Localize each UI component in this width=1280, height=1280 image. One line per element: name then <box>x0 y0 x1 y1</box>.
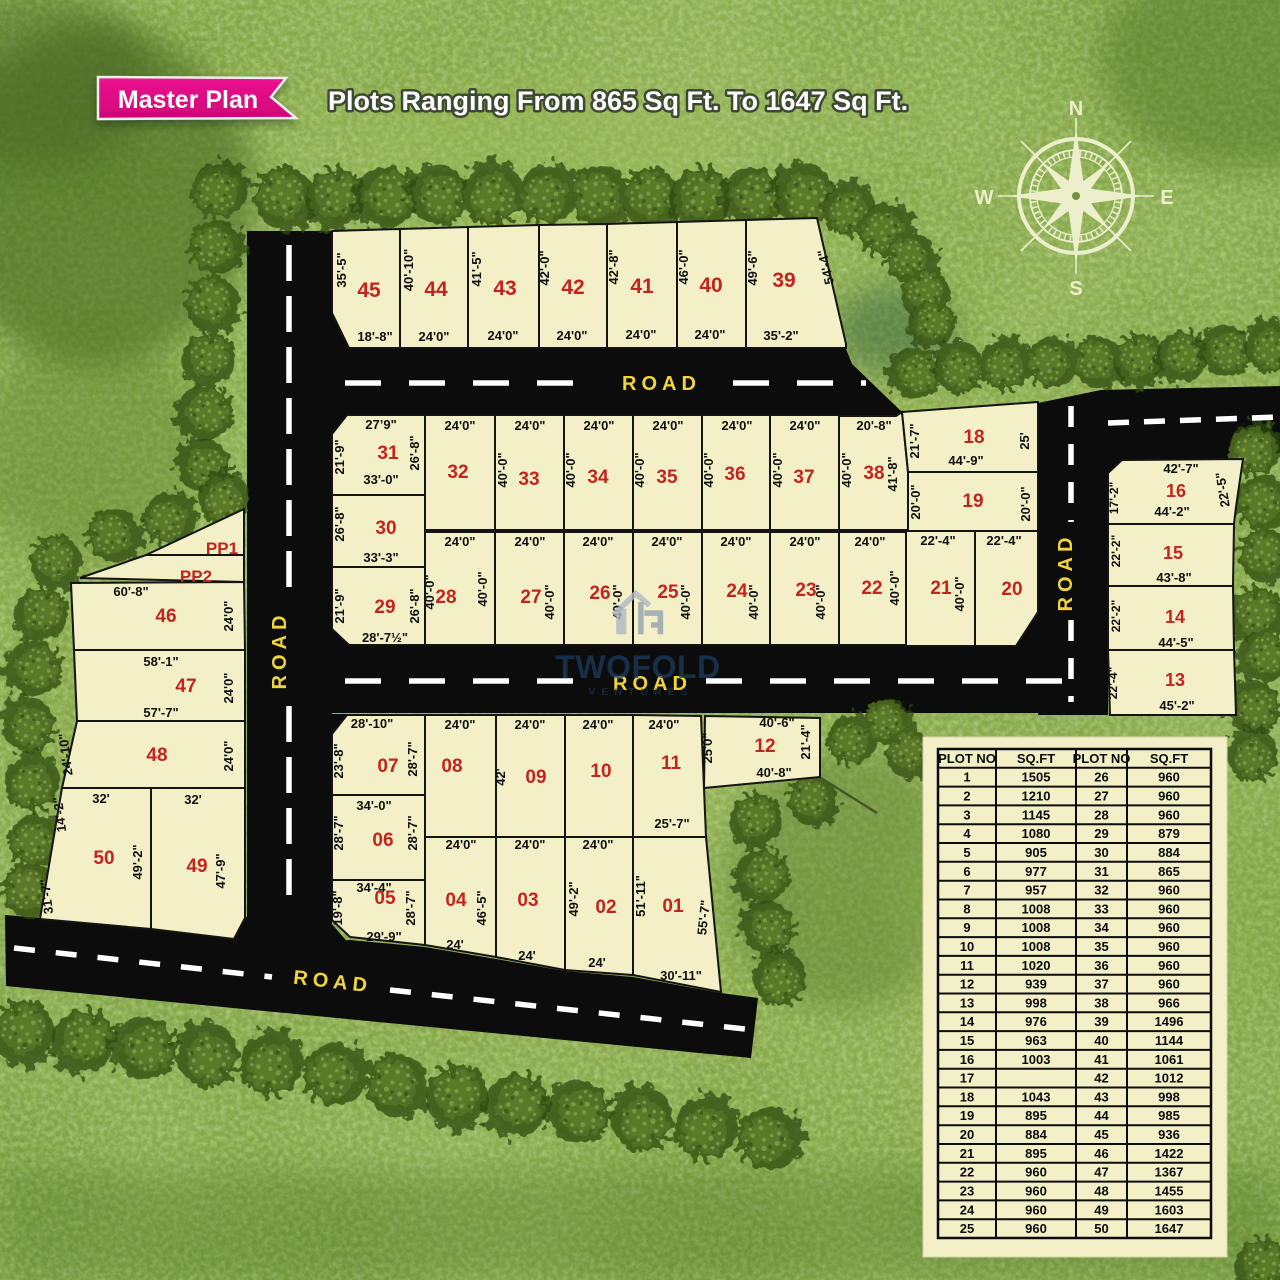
svg-text:32: 32 <box>1094 883 1108 898</box>
svg-text:42'-7": 42'-7" <box>1163 461 1198 476</box>
svg-text:46'-5": 46'-5" <box>474 890 489 925</box>
svg-text:33'-3": 33'-3" <box>363 550 398 565</box>
svg-text:49: 49 <box>1094 1202 1108 1217</box>
svg-text:19'-8": 19'-8" <box>330 890 345 925</box>
svg-text:1008: 1008 <box>1022 901 1051 916</box>
svg-text:40'-0": 40'-0" <box>701 452 716 487</box>
svg-text:24'0": 24'0" <box>653 418 684 433</box>
svg-text:23: 23 <box>960 1184 974 1199</box>
svg-text:41: 41 <box>630 275 654 298</box>
svg-text:6: 6 <box>963 864 970 879</box>
svg-text:22'-2": 22'-2" <box>1109 600 1123 633</box>
svg-text:27’9": 27’9" <box>365 417 396 432</box>
svg-text:895: 895 <box>1025 1146 1047 1161</box>
svg-text:31: 31 <box>1094 864 1108 879</box>
svg-text:14: 14 <box>960 1014 975 1029</box>
svg-text:1012: 1012 <box>1155 1071 1184 1086</box>
svg-text:12: 12 <box>754 736 775 757</box>
svg-text:01: 01 <box>662 896 684 917</box>
svg-text:21'-7": 21'-7" <box>907 423 922 458</box>
svg-text:28'-10": 28'-10" <box>351 716 394 731</box>
svg-text:40'-0": 40'-0" <box>422 574 437 609</box>
svg-text:32': 32' <box>92 791 110 806</box>
svg-text:34'-0": 34'-0" <box>356 798 391 813</box>
svg-text:50: 50 <box>1094 1221 1108 1236</box>
svg-text:960: 960 <box>1025 1184 1047 1199</box>
svg-text:40'-0": 40'-0" <box>746 584 761 619</box>
svg-text:VENTURES: VENTURES <box>588 686 693 698</box>
svg-text:24'0": 24'0" <box>583 717 614 732</box>
svg-text:17: 17 <box>960 1071 974 1086</box>
svg-text:24': 24' <box>518 948 536 963</box>
svg-text:25: 25 <box>657 582 679 603</box>
svg-text:28: 28 <box>435 587 456 608</box>
svg-text:1020: 1020 <box>1022 958 1051 973</box>
svg-text:40'-0": 40'-0" <box>678 584 693 619</box>
svg-text:44: 44 <box>1094 1108 1109 1123</box>
svg-text:28: 28 <box>1094 807 1108 822</box>
svg-text:46'-0": 46'-0" <box>676 249 691 284</box>
svg-text:25': 25' <box>1017 432 1032 450</box>
svg-text:963: 963 <box>1025 1033 1047 1048</box>
svg-text:32: 32 <box>447 462 468 483</box>
svg-text:28'-7": 28'-7" <box>405 741 420 776</box>
svg-text:7: 7 <box>963 883 970 898</box>
svg-text:26'-8": 26'-8" <box>332 506 347 541</box>
svg-text:21'-4": 21'-4" <box>798 724 813 759</box>
svg-text:51'-11": 51'-11" <box>633 875 648 917</box>
svg-text:24'0": 24'0" <box>515 534 546 549</box>
svg-text:33'-0": 33'-0" <box>363 472 398 487</box>
svg-text:24: 24 <box>960 1202 975 1217</box>
svg-text:960: 960 <box>1158 789 1180 804</box>
svg-text:1144: 1144 <box>1155 1033 1184 1048</box>
svg-text:24'0": 24'0" <box>445 534 476 549</box>
svg-text:960: 960 <box>1158 807 1180 822</box>
svg-text:42': 42' <box>493 768 508 786</box>
svg-text:1145: 1145 <box>1022 807 1050 822</box>
svg-text:20'-0": 20'-0" <box>908 484 923 519</box>
svg-text:24': 24' <box>588 955 606 970</box>
svg-text:895: 895 <box>1025 1108 1047 1123</box>
svg-text:24'0": 24'0" <box>221 601 236 632</box>
svg-text:26'-8": 26'-8" <box>407 435 422 470</box>
svg-text:40'-0": 40'-0" <box>632 452 647 487</box>
svg-text:1455: 1455 <box>1155 1184 1184 1199</box>
svg-text:42: 42 <box>1094 1071 1108 1086</box>
svg-text:936: 936 <box>1158 1127 1180 1142</box>
svg-text:18'-8": 18'-8" <box>357 329 392 344</box>
svg-text:40'-0": 40'-0" <box>952 576 967 611</box>
svg-text:36: 36 <box>1094 958 1108 973</box>
svg-text:S: S <box>1069 278 1082 300</box>
svg-text:28'-7": 28'-7" <box>403 890 418 925</box>
svg-text:08: 08 <box>441 756 462 777</box>
svg-text:18: 18 <box>960 1089 974 1104</box>
svg-text:N: N <box>1069 98 1083 120</box>
svg-text:25'-7": 25'-7" <box>654 816 689 831</box>
svg-text:22'-4": 22'-4" <box>920 533 955 548</box>
svg-text:40'-0": 40'-0" <box>839 452 854 487</box>
svg-text:24'0": 24'0" <box>221 741 236 772</box>
svg-text:10: 10 <box>590 761 611 782</box>
svg-text:16: 16 <box>1166 481 1186 501</box>
svg-text:PLOT NO: PLOT NO <box>1073 751 1131 766</box>
svg-text:24'0": 24'0" <box>445 717 476 732</box>
svg-text:26: 26 <box>1094 770 1108 785</box>
svg-text:24: 24 <box>726 581 748 602</box>
svg-text:19: 19 <box>962 491 983 512</box>
svg-text:38: 38 <box>863 463 884 484</box>
svg-text:23'-8": 23'-8" <box>331 743 346 778</box>
svg-text:24'0": 24'0" <box>722 418 753 433</box>
svg-text:27: 27 <box>1094 789 1108 804</box>
svg-text:939: 939 <box>1025 977 1047 992</box>
svg-text:ROAD: ROAD <box>269 611 291 690</box>
svg-text:26'-8": 26'-8" <box>407 588 422 623</box>
svg-text:20'-8": 20'-8" <box>856 418 891 433</box>
svg-text:17'-2": 17'-2" <box>1107 482 1121 515</box>
svg-text:865: 865 <box>1158 864 1180 879</box>
svg-text:21: 21 <box>960 1146 974 1161</box>
svg-text:W: W <box>975 187 994 209</box>
svg-text:49'-2": 49'-2" <box>130 844 145 879</box>
svg-text:960: 960 <box>1158 958 1180 973</box>
svg-text:30: 30 <box>375 518 396 539</box>
svg-text:30'-11": 30'-11" <box>660 968 702 983</box>
svg-text:1367: 1367 <box>1155 1165 1184 1180</box>
svg-text:4: 4 <box>963 826 971 841</box>
svg-text:9: 9 <box>963 920 970 935</box>
svg-text:22: 22 <box>861 578 882 599</box>
svg-text:1043: 1043 <box>1022 1089 1051 1104</box>
svg-text:1061: 1061 <box>1155 1052 1184 1067</box>
svg-text:10: 10 <box>960 939 974 954</box>
svg-text:28'-7": 28'-7" <box>405 815 420 850</box>
svg-text:ROAD: ROAD <box>1055 533 1077 612</box>
svg-text:44'-9": 44'-9" <box>948 453 983 468</box>
svg-text:40'-0": 40'-0" <box>563 452 578 487</box>
svg-text:22: 22 <box>960 1165 974 1180</box>
svg-text:34: 34 <box>1094 920 1109 935</box>
svg-text:977: 977 <box>1025 864 1047 879</box>
svg-text:5: 5 <box>963 845 970 860</box>
svg-text:49: 49 <box>186 856 207 877</box>
svg-text:960: 960 <box>1158 901 1180 916</box>
svg-text:34: 34 <box>587 467 609 488</box>
svg-text:43: 43 <box>1094 1089 1108 1104</box>
svg-text:37: 37 <box>1094 977 1108 992</box>
svg-text:35'-2": 35'-2" <box>763 328 798 343</box>
svg-text:15: 15 <box>1163 543 1183 563</box>
svg-text:43: 43 <box>493 277 516 300</box>
svg-text:1210: 1210 <box>1022 789 1051 804</box>
svg-text:976: 976 <box>1025 1014 1047 1029</box>
svg-text:40'-0": 40'-0" <box>542 584 557 619</box>
svg-text:24'0": 24'0" <box>695 327 726 342</box>
svg-text:1422: 1422 <box>1155 1146 1184 1161</box>
svg-text:24'0": 24'0" <box>790 418 821 433</box>
svg-text:PP2: PP2 <box>180 567 212 586</box>
svg-text:35: 35 <box>656 467 678 488</box>
svg-text:47'-9": 47'-9" <box>213 853 228 888</box>
svg-text:36: 36 <box>724 464 745 485</box>
svg-text:57'-7": 57'-7" <box>143 705 178 720</box>
svg-text:24'0": 24'0" <box>221 673 236 704</box>
svg-text:884: 884 <box>1158 845 1180 860</box>
svg-text:1647: 1647 <box>1155 1221 1184 1236</box>
svg-text:SQ.FT: SQ.FT <box>1017 751 1055 766</box>
svg-text:27: 27 <box>520 587 541 608</box>
svg-text:40'-0": 40'-0" <box>770 452 785 487</box>
svg-text:20: 20 <box>960 1127 974 1142</box>
svg-text:33: 33 <box>518 469 539 490</box>
svg-text:24'0": 24'0" <box>855 534 886 549</box>
svg-text:24'0": 24'0" <box>446 837 477 852</box>
svg-text:40'-0": 40'-0" <box>813 584 828 619</box>
svg-text:Plots Ranging From 865 Sq Ft.: Plots Ranging From 865 Sq Ft. To 1647 Sq… <box>328 86 908 116</box>
svg-text:28'-7": 28'-7" <box>331 815 346 850</box>
svg-text:957: 957 <box>1025 883 1047 898</box>
svg-text:09: 09 <box>525 767 546 788</box>
svg-text:20'-0": 20'-0" <box>1018 486 1033 521</box>
svg-text:22'-4": 22'-4" <box>986 533 1021 548</box>
svg-text:966: 966 <box>1158 995 1180 1010</box>
svg-text:24'0": 24'0" <box>721 534 752 549</box>
svg-text:1008: 1008 <box>1022 920 1051 935</box>
svg-text:44'-2": 44'-2" <box>1154 504 1189 519</box>
svg-text:37: 37 <box>793 467 814 488</box>
svg-text:985: 985 <box>1158 1108 1180 1123</box>
svg-text:960: 960 <box>1158 920 1180 935</box>
svg-text:58'-1": 58'-1" <box>143 654 178 669</box>
svg-text:2: 2 <box>963 789 970 804</box>
svg-text:18: 18 <box>963 427 984 448</box>
svg-text:48: 48 <box>1094 1184 1108 1199</box>
svg-text:960: 960 <box>1158 883 1180 898</box>
svg-text:15: 15 <box>960 1033 974 1048</box>
svg-text:44'-5": 44'-5" <box>1158 635 1193 650</box>
svg-text:40'-8": 40'-8" <box>756 765 791 780</box>
svg-text:24'0": 24'0" <box>488 328 519 343</box>
svg-text:25'0": 25'0" <box>700 733 715 764</box>
svg-text:998: 998 <box>1025 995 1047 1010</box>
svg-text:E: E <box>1160 187 1173 209</box>
svg-text:33: 33 <box>1094 901 1108 916</box>
svg-text:40'-10": 40'-10" <box>401 249 416 292</box>
svg-text:998: 998 <box>1158 1089 1180 1104</box>
svg-text:31: 31 <box>377 443 399 464</box>
svg-text:960: 960 <box>1025 1165 1047 1180</box>
svg-text:38: 38 <box>1094 995 1108 1010</box>
svg-text:24'0": 24'0" <box>515 418 546 433</box>
svg-text:24'0": 24'0" <box>652 534 683 549</box>
svg-text:49'-6": 49'-6" <box>745 250 760 285</box>
svg-text:30: 30 <box>1094 845 1108 860</box>
svg-text:1008: 1008 <box>1022 939 1051 954</box>
svg-text:07: 07 <box>377 756 398 777</box>
svg-text:1505: 1505 <box>1022 770 1051 785</box>
svg-text:45'-2": 45'-2" <box>1159 698 1194 713</box>
svg-text:42'-8": 42'-8" <box>606 249 621 284</box>
svg-text:21'-9": 21'-9" <box>332 439 347 474</box>
svg-text:47: 47 <box>175 676 196 697</box>
svg-text:40: 40 <box>1094 1033 1108 1048</box>
svg-text:28'-7½": 28'-7½" <box>362 630 408 645</box>
svg-text:29: 29 <box>1094 826 1108 841</box>
svg-text:960: 960 <box>1025 1202 1047 1217</box>
svg-text:PLOT NO: PLOT NO <box>938 751 996 766</box>
svg-text:47: 47 <box>1094 1165 1108 1180</box>
svg-text:06: 06 <box>372 830 393 851</box>
svg-text:24'0": 24'0" <box>583 837 614 852</box>
svg-text:24'0": 24'0" <box>790 534 821 549</box>
svg-text:44: 44 <box>424 278 448 301</box>
svg-text:48: 48 <box>146 745 167 766</box>
svg-text:40'-0": 40'-0" <box>887 570 902 605</box>
svg-text:02: 02 <box>595 897 616 918</box>
svg-text:32': 32' <box>184 792 202 807</box>
svg-text:11: 11 <box>661 753 682 774</box>
svg-text:11: 11 <box>960 958 974 973</box>
svg-text:35'-5": 35'-5" <box>334 252 349 287</box>
svg-text:39: 39 <box>1094 1014 1108 1029</box>
svg-text:1: 1 <box>963 770 970 785</box>
svg-text:29: 29 <box>374 597 395 618</box>
svg-text:24'0": 24'0" <box>649 717 680 732</box>
svg-text:39: 39 <box>772 269 795 292</box>
svg-text:41: 41 <box>1094 1052 1108 1067</box>
svg-text:3: 3 <box>963 807 970 822</box>
svg-text:24'0": 24'0" <box>584 418 615 433</box>
svg-text:12: 12 <box>960 977 974 992</box>
svg-text:04: 04 <box>445 890 467 911</box>
svg-text:TWOFOLD: TWOFOLD <box>555 649 720 685</box>
svg-text:24'0": 24'0" <box>515 717 546 732</box>
svg-text:40: 40 <box>699 274 722 297</box>
svg-text:884: 884 <box>1025 1127 1047 1142</box>
svg-text:19: 19 <box>960 1108 974 1123</box>
svg-text:24'0": 24'0" <box>515 837 546 852</box>
svg-text:46: 46 <box>1094 1146 1108 1161</box>
svg-text:13: 13 <box>960 995 974 1010</box>
svg-text:46: 46 <box>155 606 176 627</box>
svg-text:14: 14 <box>1165 607 1185 627</box>
svg-text:41'-5": 41'-5" <box>469 251 484 286</box>
svg-text:PP1: PP1 <box>206 539 238 558</box>
svg-text:20: 20 <box>1001 579 1022 600</box>
svg-text:45: 45 <box>1094 1127 1108 1142</box>
svg-text:43'-8": 43'-8" <box>1156 570 1191 585</box>
svg-text:21: 21 <box>930 578 952 599</box>
svg-text:905: 905 <box>1025 845 1047 860</box>
svg-text:24'0": 24'0" <box>583 534 614 549</box>
svg-text:SQ.FT: SQ.FT <box>1150 751 1188 766</box>
svg-text:22'-4": 22'-4" <box>1106 667 1120 700</box>
svg-text:21'-9": 21'-9" <box>332 588 347 623</box>
svg-text:35: 35 <box>1094 939 1108 954</box>
svg-text:ROAD: ROAD <box>622 373 701 395</box>
svg-text:40'-6": 40'-6" <box>759 715 794 730</box>
svg-text:05: 05 <box>374 888 396 909</box>
svg-text:24': 24' <box>446 937 464 952</box>
svg-text:24'0": 24'0" <box>419 329 450 344</box>
svg-text:24'0": 24'0" <box>445 418 476 433</box>
svg-text:29'-9": 29'-9" <box>366 929 401 944</box>
svg-text:26: 26 <box>589 583 610 604</box>
svg-text:960: 960 <box>1158 939 1180 954</box>
svg-text:40'-0": 40'-0" <box>495 452 510 487</box>
svg-text:1003: 1003 <box>1022 1052 1051 1067</box>
svg-text:960: 960 <box>1025 1221 1047 1236</box>
svg-text:879: 879 <box>1158 826 1180 841</box>
svg-text:60'-8": 60'-8" <box>113 584 148 599</box>
svg-text:24'0": 24'0" <box>626 327 657 342</box>
svg-text:16: 16 <box>960 1052 974 1067</box>
svg-text:45: 45 <box>357 279 381 302</box>
svg-text:13: 13 <box>1165 670 1185 690</box>
svg-text:25: 25 <box>960 1221 974 1236</box>
svg-text:960: 960 <box>1158 770 1180 785</box>
svg-text:42: 42 <box>561 276 584 299</box>
svg-text:1496: 1496 <box>1155 1014 1184 1029</box>
svg-text:03: 03 <box>517 890 538 911</box>
svg-text:1080: 1080 <box>1022 826 1051 841</box>
svg-text:22'-2": 22'-2" <box>1109 535 1123 568</box>
svg-text:960: 960 <box>1158 977 1180 992</box>
svg-text:50: 50 <box>93 848 114 869</box>
svg-text:Master Plan: Master Plan <box>118 86 258 114</box>
svg-text:42'-0": 42'-0" <box>537 250 552 285</box>
svg-text:41'-8": 41'-8" <box>885 456 900 491</box>
svg-text:24'0": 24'0" <box>557 328 588 343</box>
svg-text:49'-2": 49'-2" <box>566 881 581 916</box>
svg-text:40'-0": 40'-0" <box>475 571 490 606</box>
svg-text:1603: 1603 <box>1155 1202 1184 1217</box>
svg-text:8: 8 <box>963 901 970 916</box>
